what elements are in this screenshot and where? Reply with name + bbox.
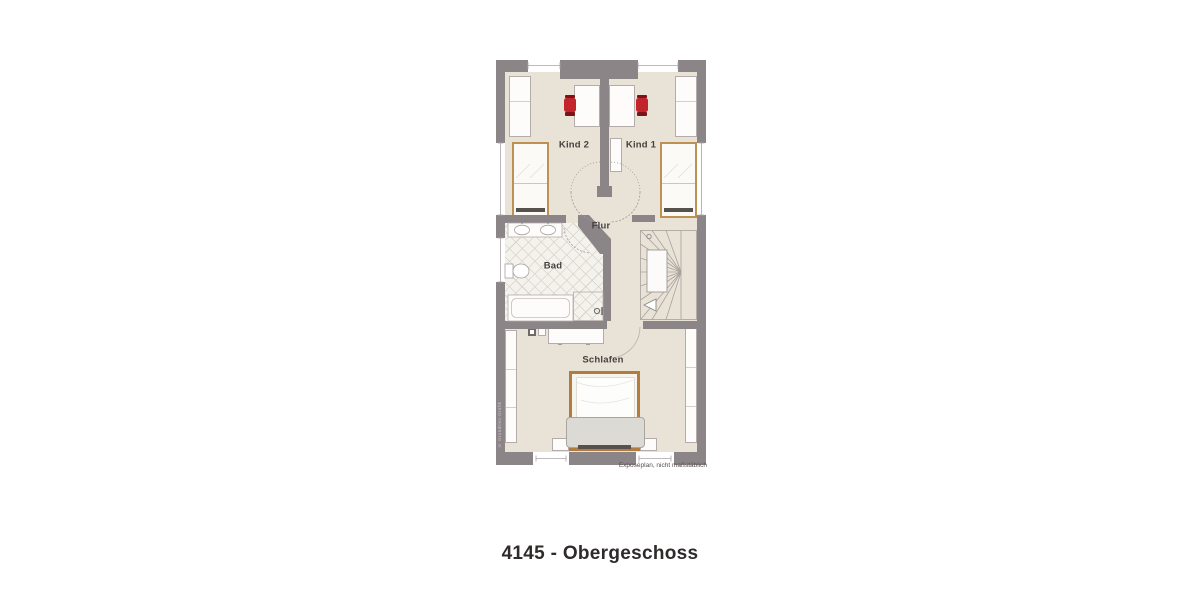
page-title: 4145 - Obergeschoss [0, 543, 1200, 565]
room-label-kind1: Kind 1 [626, 140, 656, 151]
door-arc [564, 162, 640, 358]
room-label-flur: Flur [592, 221, 611, 232]
toilet-icon [505, 264, 529, 278]
floorplan: Kind 2 Kind 1 Flur Bad Schlafen © Grundr… [496, 60, 706, 465]
watermark-text: © Grundriss-Grafik [497, 390, 505, 448]
sink-icon [508, 217, 562, 238]
bathtub-icon [508, 295, 573, 321]
stair-void [647, 250, 667, 292]
room-label-schlafen: Schlafen [582, 355, 623, 366]
stair-post-marker [647, 234, 651, 238]
page: Kind 2 Kind 1 Flur Bad Schlafen © Grundr… [0, 0, 1200, 600]
disclaimer-text: Exposéplan, nicht maßstäblich [619, 462, 707, 469]
shower-icon [574, 292, 604, 321]
stair-direction-arrow [644, 299, 656, 311]
plan-overlay [496, 60, 706, 465]
room-label-bad: Bad [544, 261, 563, 272]
room-label-kind2: Kind 2 [559, 140, 589, 151]
